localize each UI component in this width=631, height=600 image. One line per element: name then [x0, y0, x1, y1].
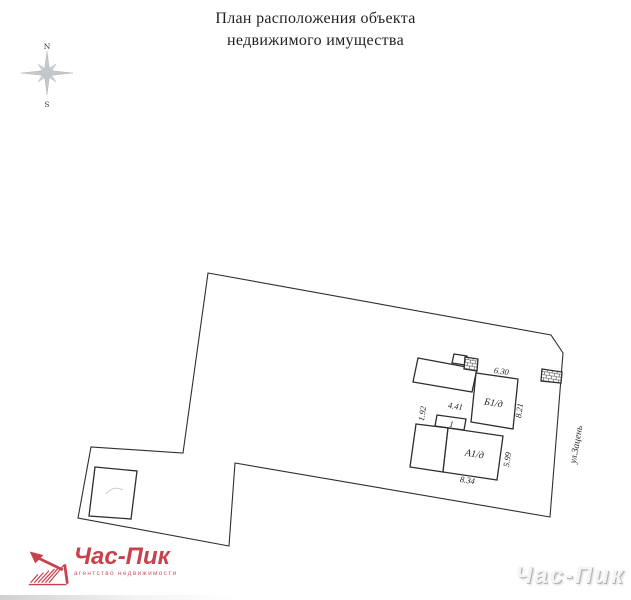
- parcel: Б1/д А1/д 1 6.30 8.21 4.41 1.92 5.99 8.3…: [78, 273, 585, 546]
- shed-street-hatched: [541, 369, 562, 383]
- agency-logo: Час-Пик агентство недвижимости: [26, 545, 177, 587]
- document-page: План расположения объекта недвижимого им…: [0, 0, 631, 600]
- logo-tagline: агентство недвижимости: [74, 570, 177, 577]
- outbuilding-sw: [89, 467, 137, 519]
- dimension-annex-width: 4.41: [447, 400, 463, 412]
- site-plan: N S Б1/д А1/д 1: [0, 0, 631, 600]
- building-nw-annex-hatched: [464, 357, 478, 371]
- street-label: ул.Зацень: [569, 424, 586, 465]
- compass-north-label: N: [44, 42, 51, 51]
- compass-rose: N S: [21, 42, 73, 109]
- building-a1-west-wing: [410, 424, 448, 472]
- compass-south-label: S: [44, 100, 49, 109]
- dimension-annex-depth: 1.92: [416, 405, 428, 422]
- logo-mark-icon: [26, 549, 72, 587]
- logo-text: Час-Пик: [74, 545, 177, 569]
- compass-star-main: [21, 51, 73, 95]
- dimension-a1-width: 8.34: [459, 474, 476, 486]
- watermark-text: Час-Пик: [515, 562, 625, 590]
- dimension-b1-depth: 8.21: [513, 402, 525, 418]
- dimension-a1-depth: 5.99: [501, 451, 513, 468]
- scan-artifact: [0, 595, 240, 600]
